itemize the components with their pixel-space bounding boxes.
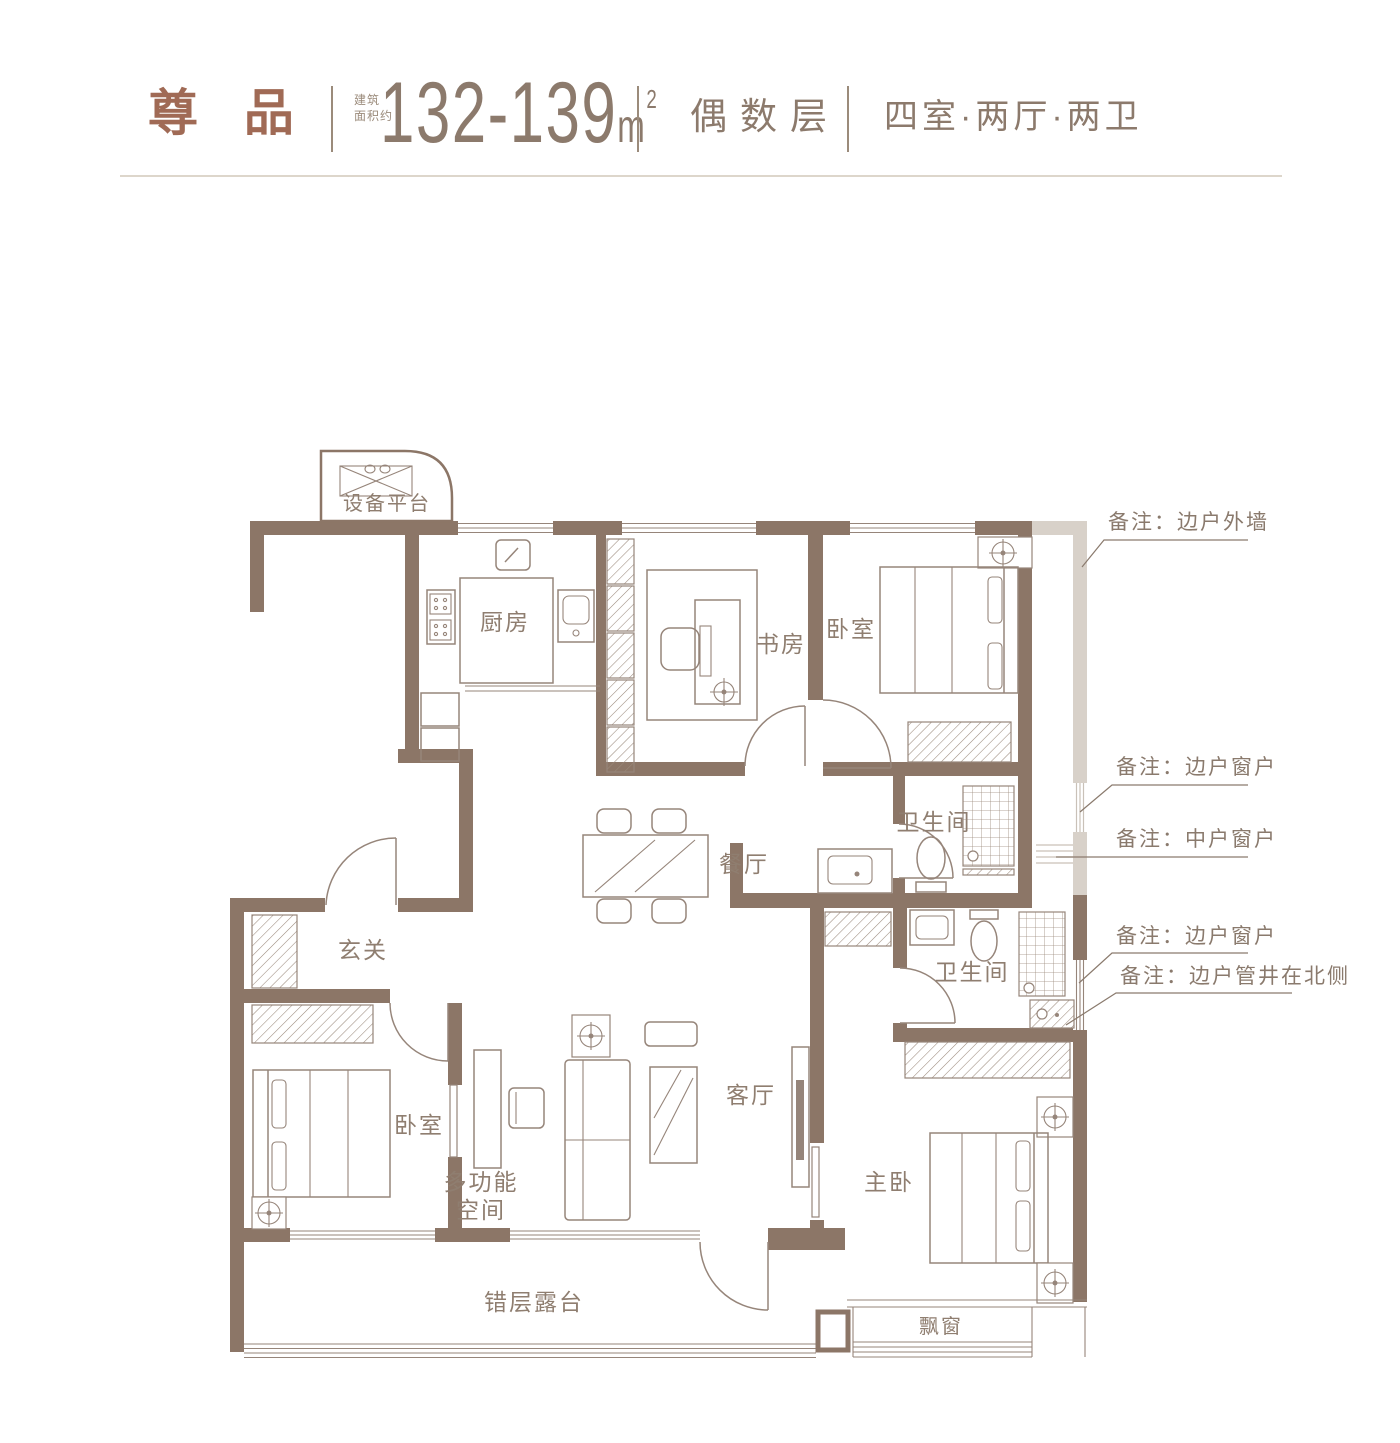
floor-plan-canvas: 尊 品 建筑 面积约 132-139m2 偶数层 四室·两厅·两卫 [0, 0, 1400, 1443]
svg-text:备注：边户窗户: 备注：边户窗户 [1116, 756, 1277, 779]
header: 尊 品 建筑 面积约 132-139m2 偶数层 四室·两厅·两卫 [120, 64, 1282, 176]
label-bedroom-north: 卧室 [826, 616, 876, 642]
chair [652, 899, 686, 923]
pillow [988, 643, 1002, 689]
cabinet [474, 1050, 501, 1168]
utensil-icon [496, 540, 530, 570]
label-entry: 玄关 [338, 937, 388, 963]
bed [880, 567, 1018, 693]
label-multifunction-1: 多功能 [444, 1169, 519, 1195]
window-bedroom-north [850, 524, 975, 533]
neighbor-ghost-walls [1032, 521, 1087, 895]
desk-chair [661, 628, 699, 670]
label-kitchen: 厨房 [480, 609, 530, 635]
wardrobe [252, 1005, 373, 1043]
svg-text:备注：边户外墙: 备注：边户外墙 [1108, 511, 1269, 534]
kitchen-furniture: 厨房 [421, 540, 600, 761]
pillow [272, 1142, 286, 1190]
doors [326, 700, 955, 1310]
pillow [1016, 1141, 1030, 1191]
monitor [700, 626, 711, 676]
area-value: 132-139m2 [380, 64, 658, 160]
window-bedroom-west [290, 1231, 435, 1239]
note-pipe-shaft: 备注：边户管井在北侧 [1066, 965, 1350, 1025]
living-furniture: 客厅 [565, 1015, 809, 1220]
terrace-pier [818, 1312, 848, 1350]
window-kitchen [458, 524, 553, 533]
sliding-door-master [812, 1147, 819, 1217]
bedroom-north-furniture: 卧室 [826, 537, 1032, 762]
plan-title: 尊 品 [148, 85, 310, 141]
note-exterior-wall: 备注：边户外墙 [1082, 511, 1269, 567]
label-study: 书房 [756, 631, 806, 657]
study-door [745, 706, 805, 766]
toilet [971, 921, 997, 961]
closet [825, 912, 891, 946]
annotations: 备注：边户外墙 备注：边户窗户 备注：中户窗户 备注：边户窗户 备注：边户管井在… [1056, 511, 1350, 1025]
bedroom-west-furniture: 卧室 [252, 1005, 444, 1229]
label-terrace: 错层露台 [484, 1289, 584, 1315]
window-study [622, 524, 756, 533]
bathroom-south-fixtures: 卫生间 [910, 910, 1074, 1028]
wardrobe [905, 1042, 1070, 1078]
sink [910, 910, 954, 945]
terrace-door [700, 1242, 768, 1310]
toilet [917, 837, 945, 879]
svg-text:备注：边户管井在北侧: 备注：边户管井在北侧 [1120, 965, 1350, 988]
label-dining: 餐厅 [719, 851, 769, 877]
area-label-line1: 建筑 [354, 92, 380, 107]
bathroom-north-fixtures: 卫生间 [818, 786, 1014, 893]
label-bathroom-south: 卫生间 [935, 959, 1010, 985]
pillow [988, 577, 1002, 623]
floor-type: 偶数层 [690, 96, 840, 137]
middle-unit-window [1036, 845, 1073, 863]
armchair [645, 1022, 697, 1046]
entry-furniture: 玄关 [252, 915, 388, 988]
fridge [421, 693, 459, 726]
equipment-platform: 设备平台 [321, 451, 452, 521]
wardrobe [908, 722, 1011, 762]
terrace: 错层露台 [244, 1289, 848, 1358]
pillow [1016, 1201, 1030, 1251]
label-living: 客厅 [726, 1082, 776, 1108]
chair [597, 809, 631, 833]
floorplan-page: 尊 品 建筑 面积约 132-139m2 偶数层 四室·两厅·两卫 [0, 0, 1400, 1443]
bay-window: 飘窗 [847, 1300, 1087, 1357]
svg-text:备注：边户窗户: 备注：边户窗户 [1116, 925, 1277, 948]
label-multifunction-2: 空间 [456, 1197, 506, 1223]
entry-door [326, 838, 396, 905]
svg-text:备注：中户窗户: 备注：中户窗户 [1116, 828, 1277, 851]
note-middle-window: 备注：中户窗户 [1056, 828, 1277, 857]
compass-icon [710, 678, 738, 706]
bed [253, 1070, 390, 1197]
label-bay-window: 飘窗 [919, 1315, 963, 1338]
chair [509, 1088, 544, 1128]
bedroom-west-door [390, 1003, 448, 1061]
shoe-cabinet [252, 915, 297, 988]
study-furniture: 书房 [647, 570, 806, 720]
label-bedroom-west: 卧室 [394, 1112, 444, 1138]
chair [652, 809, 686, 833]
window-living [510, 1231, 700, 1239]
label-equipment-platform: 设备平台 [343, 492, 431, 515]
sliding-door-multifunction [450, 1085, 457, 1157]
label-bathroom-north: 卫生间 [897, 809, 972, 835]
note-side-window-1: 备注：边户窗户 [1080, 756, 1277, 812]
chair [597, 899, 631, 923]
bookshelf-column [607, 539, 634, 772]
tv-screen [796, 1080, 804, 1160]
pillow [272, 1080, 286, 1128]
label-master: 主卧 [864, 1169, 914, 1195]
bedroom-north-door [823, 700, 891, 768]
layout-type: 四室·两厅·两卫 [884, 98, 1143, 136]
